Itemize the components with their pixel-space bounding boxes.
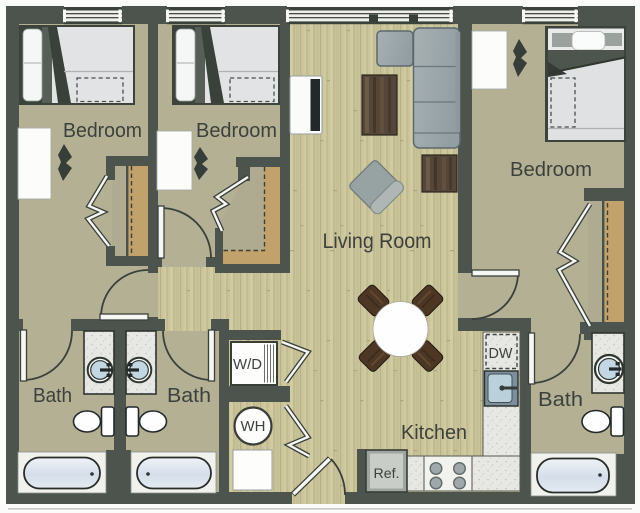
svg-text:Bath: Bath xyxy=(538,389,583,411)
svg-text:Kitchen: Kitchen xyxy=(401,422,467,444)
svg-text:Bath: Bath xyxy=(33,385,72,407)
svg-text:DW: DW xyxy=(489,346,513,362)
svg-text:Bedroom: Bedroom xyxy=(510,159,592,181)
svg-text:Bedroom: Bedroom xyxy=(63,120,142,142)
svg-text:Bedroom: Bedroom xyxy=(196,120,277,142)
svg-text:W/D: W/D xyxy=(233,357,262,373)
svg-text:Ref.: Ref. xyxy=(374,465,400,481)
svg-text:WH: WH xyxy=(241,419,266,435)
svg-text:Living Room: Living Room xyxy=(323,230,432,253)
svg-text:Bath: Bath xyxy=(167,385,211,407)
